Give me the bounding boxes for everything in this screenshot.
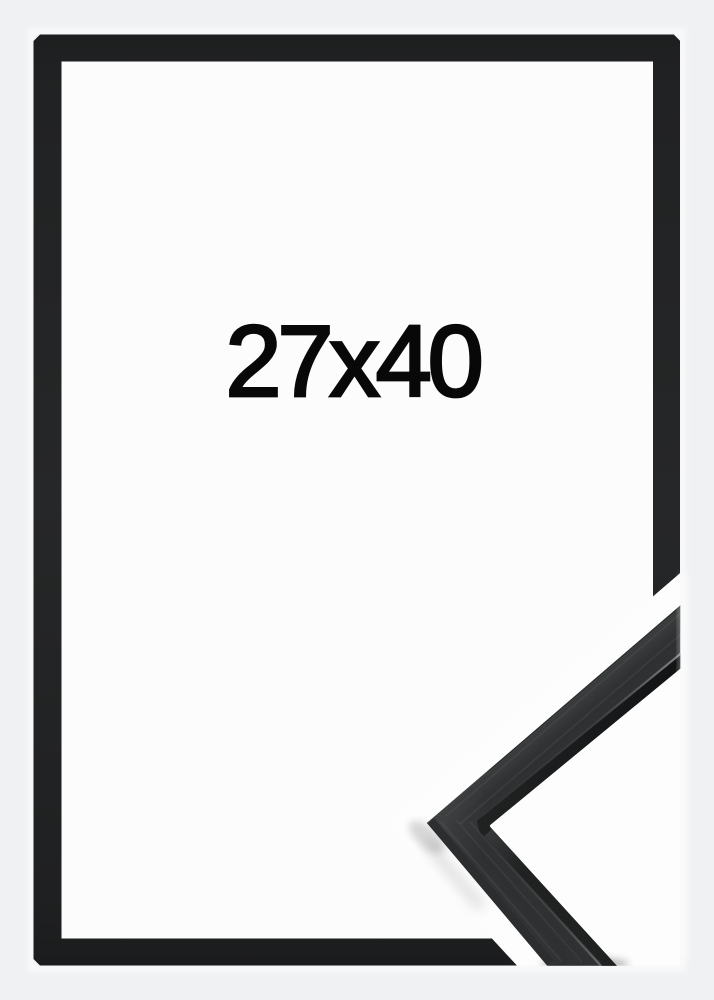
svg-text:27x40: 27x40 — [225, 306, 480, 418]
